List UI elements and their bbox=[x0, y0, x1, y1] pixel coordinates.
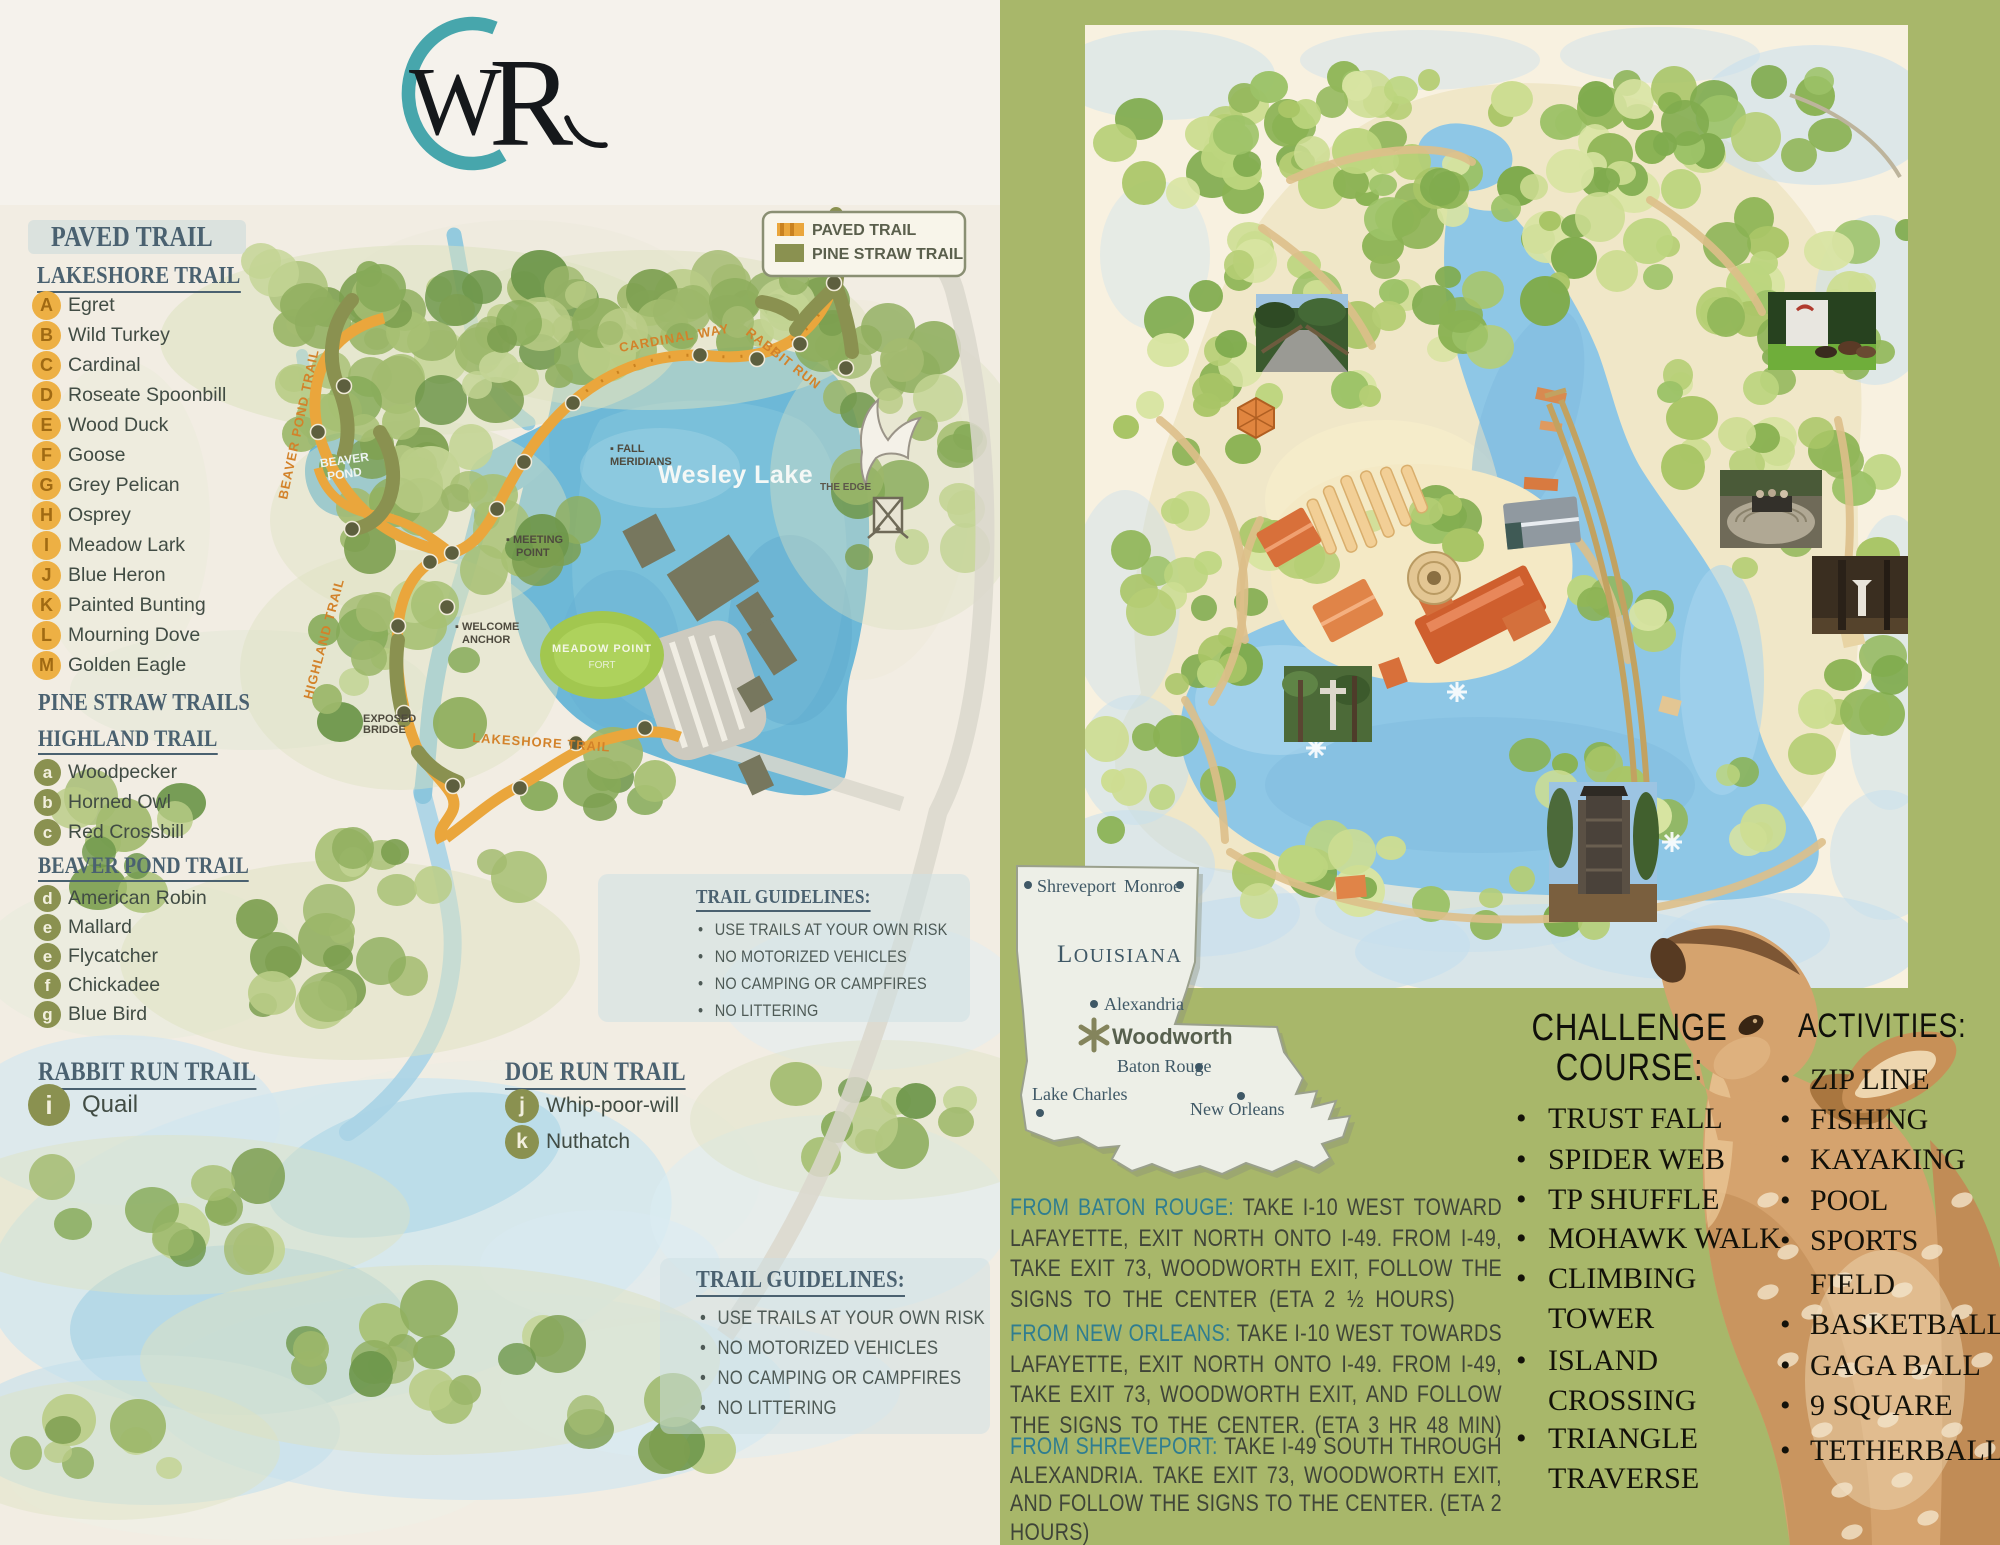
svg-text:Shreveport: Shreveport bbox=[1037, 876, 1116, 896]
svg-text:Woodworth: Woodworth bbox=[1112, 1024, 1233, 1049]
svg-text:Lake Charles: Lake Charles bbox=[1032, 1084, 1127, 1104]
svg-text:LOUISIANA: LOUISIANA bbox=[1057, 941, 1182, 968]
svg-text:Wesley Lake: Wesley Lake bbox=[658, 461, 813, 489]
svg-text:PINE STRAW TRAIL: PINE STRAW TRAIL bbox=[812, 246, 963, 263]
svg-text:MEADOW POINT: MEADOW POINT bbox=[552, 643, 652, 655]
svg-text:New Orleans: New Orleans bbox=[1190, 1099, 1284, 1119]
svg-text:THE EDGE: THE EDGE bbox=[820, 482, 871, 493]
svg-text:ANCHOR: ANCHOR bbox=[462, 634, 510, 646]
svg-text:▪ MEETING: ▪ MEETING bbox=[506, 534, 563, 546]
svg-text:POINT: POINT bbox=[516, 547, 550, 559]
svg-text:MERIDIANS: MERIDIANS bbox=[610, 456, 672, 468]
svg-text:PAVED TRAIL: PAVED TRAIL bbox=[812, 222, 917, 239]
svg-text:▪ FALL: ▪ FALL bbox=[610, 443, 645, 455]
svg-text:BRIDGE: BRIDGE bbox=[363, 724, 406, 736]
svg-text:▪ WELCOME: ▪ WELCOME bbox=[455, 621, 519, 633]
svg-text:FORT: FORT bbox=[588, 660, 615, 671]
svg-text:R: R bbox=[489, 34, 573, 173]
svg-text:Monroe: Monroe bbox=[1124, 876, 1181, 896]
svg-text:Alexandria: Alexandria bbox=[1104, 994, 1184, 1014]
